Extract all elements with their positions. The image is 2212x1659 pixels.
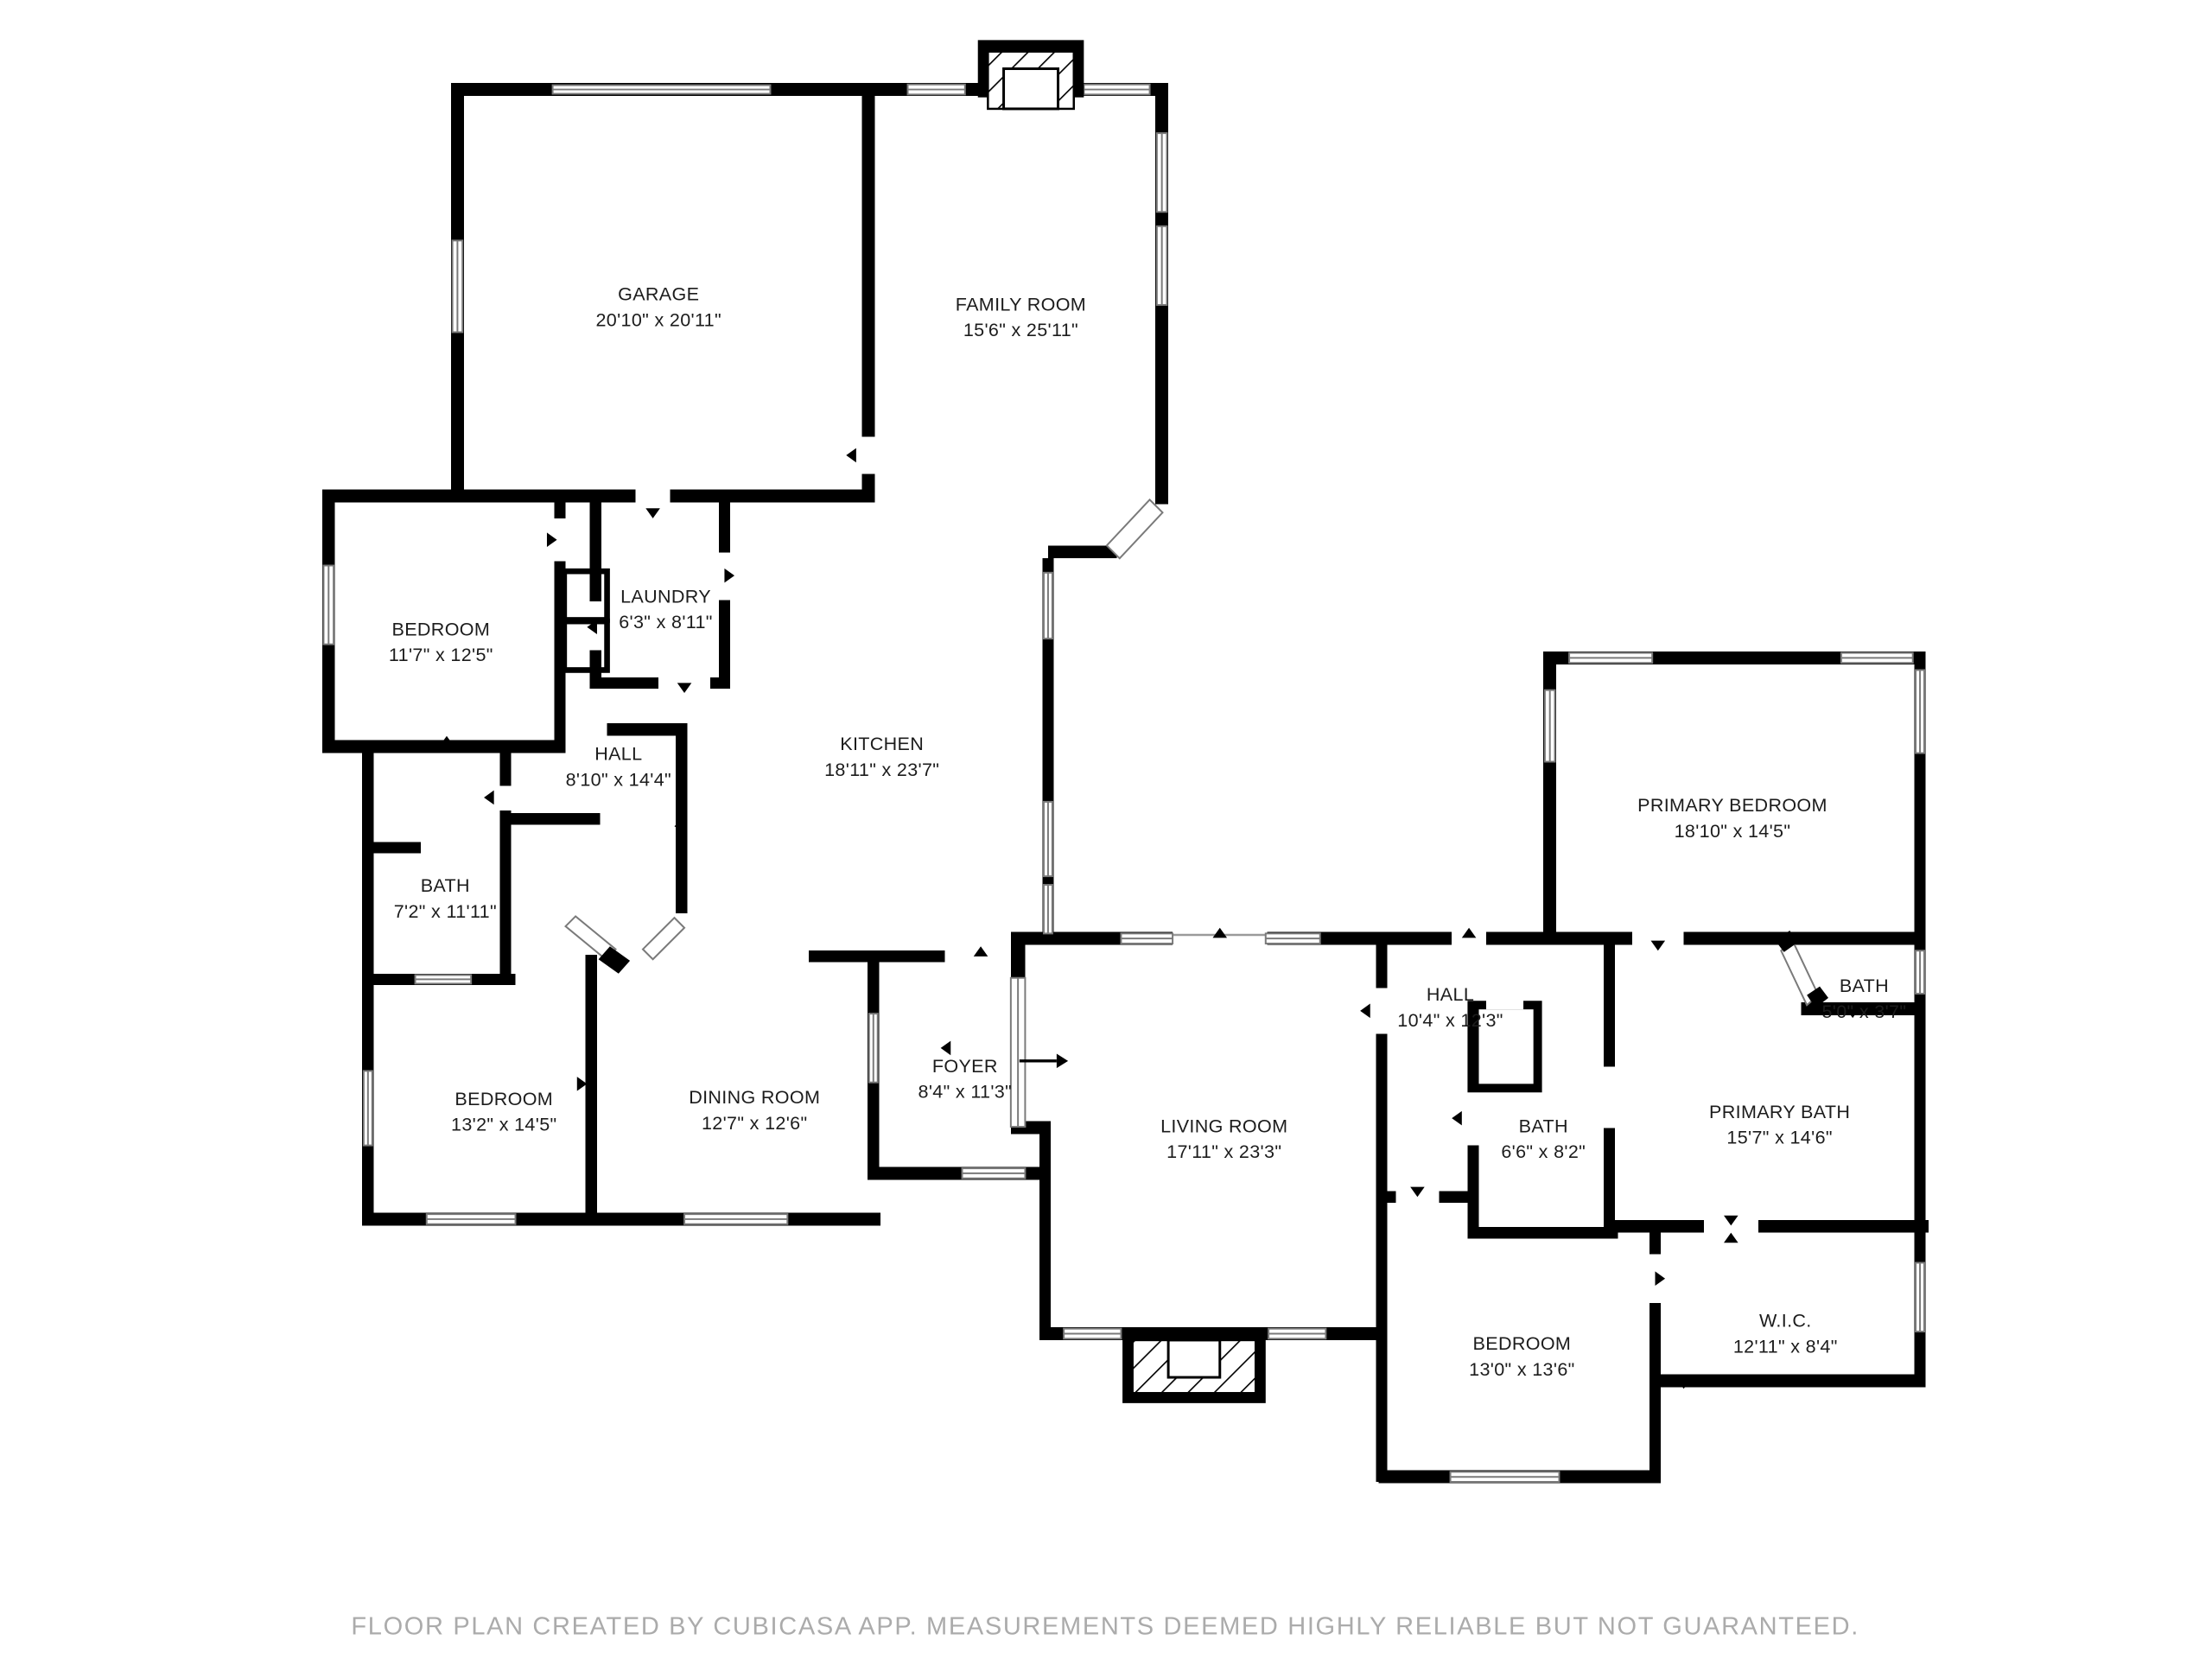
floor-plan-page: GARAGE 20'10" x 20'11" FAMILY ROOM 15'6"… [0,0,2212,1659]
room-name: KITCHEN [824,731,939,757]
room-name: BATH [1821,973,1906,999]
room-label-hall-2: HALL 10'4" x 12'3" [1397,982,1503,1033]
chimney-glyph [978,40,1084,109]
room-name: HALL [566,741,671,767]
room-label-primary-bath: PRIMARY BATH 15'7" x 14'6" [1709,1099,1850,1151]
room-label-laundry: LAUNDRY 6'3" x 8'11" [619,584,713,636]
room-label-bedroom-3: BEDROOM 13'0" x 13'6" [1469,1332,1574,1383]
room-label-bath-2: BATH 6'6" x 8'2" [1501,1114,1586,1166]
room-name: FOYER [918,1053,1013,1079]
room-name: LAUNDRY [619,584,713,610]
room-label-living-room: LIVING ROOM 17'11" x 23'3" [1160,1114,1287,1166]
room-name: BEDROOM [1469,1332,1574,1357]
floor-plan-canvas: GARAGE 20'10" x 20'11" FAMILY ROOM 15'6"… [0,0,2212,1659]
room-dims: 15'7" x 14'6" [1709,1125,1850,1151]
room-name: BATH [1501,1114,1586,1140]
floorplan-svg [0,0,2212,1659]
room-dims: 18'10" x 14'5" [1637,819,1827,845]
room-dims: 13'2" x 14'5" [451,1112,556,1138]
room-dims: 12'7" x 12'6" [689,1111,820,1137]
room-dims: 17'11" x 23'3" [1160,1140,1287,1166]
room-name: LIVING ROOM [1160,1114,1287,1140]
room-name: HALL [1397,982,1503,1007]
room-dims: 13'0" x 13'6" [1469,1357,1574,1383]
room-label-foyer: FOYER 8'4" x 11'3" [918,1053,1013,1105]
room-dims: 20'10" x 20'11" [595,308,721,334]
room-dims: 12'11" x 8'4" [1733,1334,1838,1360]
room-label-garage: GARAGE 20'10" x 20'11" [595,282,721,334]
room-label-bedroom-2: BEDROOM 13'2" x 14'5" [451,1086,556,1138]
room-name: PRIMARY BEDROOM [1637,793,1827,819]
room-name: DINING ROOM [689,1085,820,1111]
room-name: W.I.C. [1733,1308,1838,1334]
room-dims: 8'4" x 11'3" [918,1079,1013,1105]
room-name: GARAGE [595,282,721,308]
room-label-bedroom-1: BEDROOM 11'7" x 12'5" [389,617,493,669]
room-name: FAMILY ROOM [956,292,1086,318]
room-name: BATH [394,873,497,899]
room-dims: 6'6" x 8'2" [1501,1140,1586,1166]
room-label-primary-bedroom: PRIMARY BEDROOM 18'10" x 14'5" [1637,793,1827,845]
room-dims: 15'6" x 25'11" [956,318,1086,344]
room-label-hall-1: HALL 8'10" x 14'4" [566,741,671,793]
door-openings [499,436,1758,1302]
room-name: PRIMARY BATH [1709,1099,1850,1125]
room-dims: 7'2" x 11'11" [394,899,497,925]
room-label-bath-1: BATH 7'2" x 11'11" [394,873,497,925]
room-label-family-room: FAMILY ROOM 15'6" x 25'11" [956,292,1086,344]
front-door-arrow-icon [1020,1054,1068,1069]
room-dims: 18'11" x 23'7" [824,758,939,784]
room-name: BEDROOM [389,617,493,643]
room-label-dining-room: DINING ROOM 12'7" x 12'6" [689,1085,820,1137]
room-dims: 6'3" x 8'11" [619,610,713,636]
fireplace-glyph [1122,1338,1266,1403]
wall-segments [322,83,1929,1484]
room-dims: 8'10" x 14'4" [566,767,671,793]
room-dims: 11'7" x 12'5" [389,643,493,669]
room-label-bath-3: BATH 5'0" x 3'7" [1821,973,1906,1025]
window-glyphs [323,85,1924,1482]
room-dims: 10'4" x 12'3" [1397,1008,1503,1034]
footer-disclaimer: FLOOR PLAN CREATED BY CUBICASA APP. MEAS… [351,1611,1859,1642]
room-name: BEDROOM [451,1086,556,1112]
room-label-kitchen: KITCHEN 18'11" x 23'7" [824,731,939,783]
room-label-wic: W.I.C. 12'11" x 8'4" [1733,1308,1838,1360]
room-dims: 5'0" x 3'7" [1821,1000,1906,1026]
